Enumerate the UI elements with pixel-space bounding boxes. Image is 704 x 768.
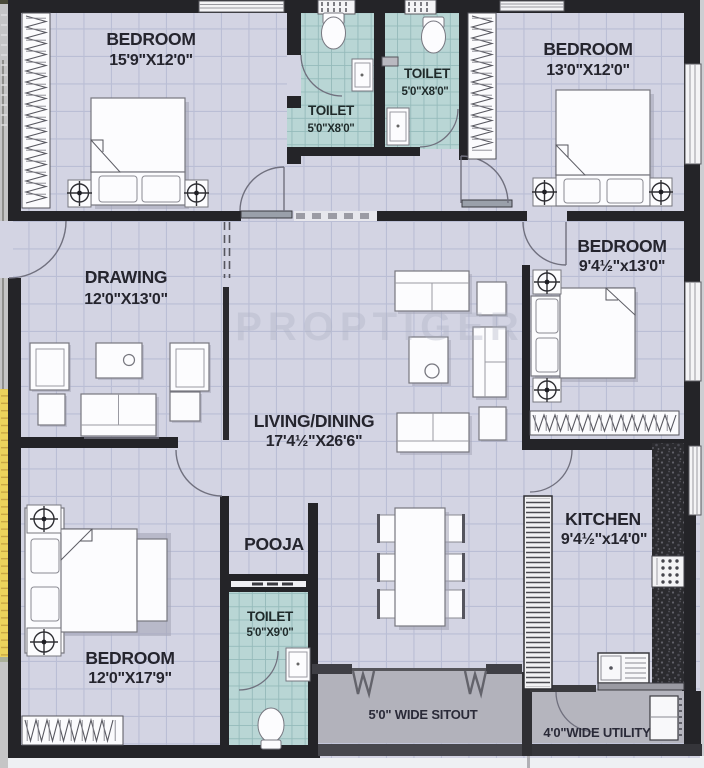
svg-text:BEDROOM: BEDROOM bbox=[577, 236, 666, 256]
svg-text:12'0"X17'9": 12'0"X17'9" bbox=[88, 670, 172, 687]
svg-text:17'4½"X26'6": 17'4½"X26'6" bbox=[266, 433, 363, 450]
svg-text:15'9"X12'0": 15'9"X12'0" bbox=[109, 52, 193, 69]
svg-text:TOILET: TOILET bbox=[247, 609, 294, 624]
svg-text:BEDROOM: BEDROOM bbox=[85, 648, 174, 668]
svg-text:5'0"X9'0": 5'0"X9'0" bbox=[247, 627, 294, 639]
svg-text:12'0"X13'0": 12'0"X13'0" bbox=[84, 291, 168, 308]
svg-text:TOILET: TOILET bbox=[308, 103, 355, 118]
svg-text:KITCHEN: KITCHEN bbox=[565, 509, 641, 529]
svg-text:9'4½"x13'0": 9'4½"x13'0" bbox=[579, 258, 665, 275]
svg-text:13'0"X12'0": 13'0"X12'0" bbox=[546, 62, 630, 79]
svg-text:POOJA: POOJA bbox=[244, 534, 304, 554]
svg-text:5'0" WIDE SITOUT: 5'0" WIDE SITOUT bbox=[368, 707, 477, 722]
svg-text:9'4½"x14'0": 9'4½"x14'0" bbox=[561, 531, 647, 548]
svg-text:BEDROOM: BEDROOM bbox=[106, 29, 195, 49]
svg-text:TOILET: TOILET bbox=[404, 66, 451, 81]
svg-text:4'0"WIDE UTILITY: 4'0"WIDE UTILITY bbox=[543, 725, 651, 740]
svg-text:5'0"X8'0": 5'0"X8'0" bbox=[308, 123, 355, 135]
svg-text:5'0"X8'0": 5'0"X8'0" bbox=[402, 86, 449, 98]
svg-text:DRAWING: DRAWING bbox=[85, 267, 167, 287]
svg-text:LIVING/DINING: LIVING/DINING bbox=[254, 411, 375, 431]
svg-text:BEDROOM: BEDROOM bbox=[543, 39, 632, 59]
svg-text:PROPTIGER: PROPTIGER bbox=[235, 305, 525, 349]
